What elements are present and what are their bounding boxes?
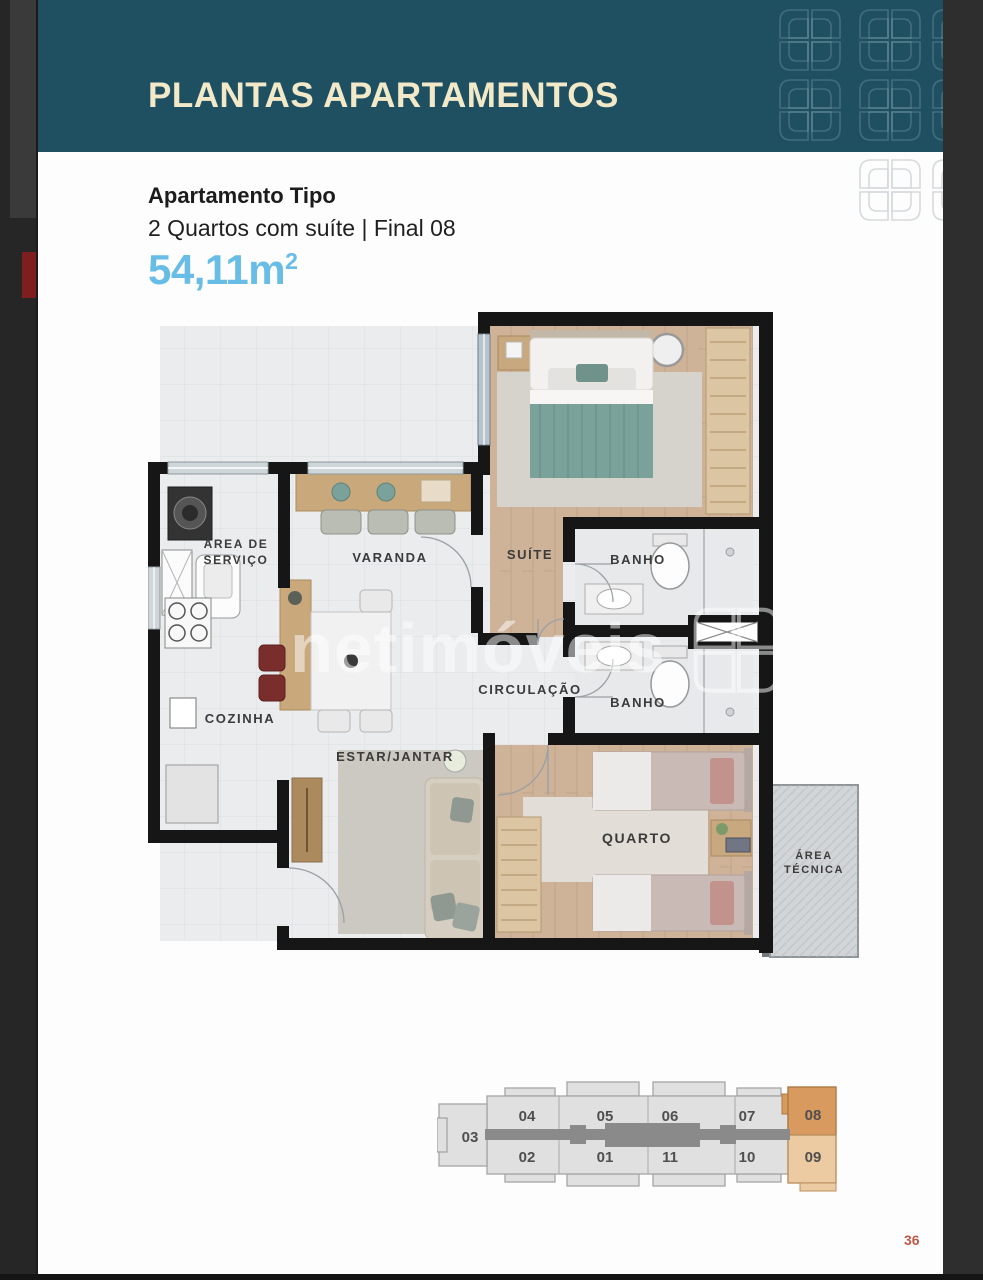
label-banho-suite: BANHO <box>610 552 666 567</box>
keyplan-highlighted-units <box>782 1087 836 1191</box>
viewer-bottom-bar <box>0 1274 983 1280</box>
page-title: PLANTAS APARTAMENTOS <box>148 76 619 116</box>
page-number: 36 <box>904 1232 920 1248</box>
unit-07-label: 07 <box>739 1108 756 1125</box>
apartment-type-heading: Apartamento Tipo <box>148 183 336 209</box>
label-area-tecnica-1: ÁREA <box>795 849 833 862</box>
label-area-servico-1: ÁREA DE <box>204 536 269 551</box>
unit-08-label: 08 <box>805 1107 822 1124</box>
label-varanda: VARANDA <box>352 550 427 565</box>
unit-09-label: 09 <box>805 1149 822 1166</box>
screenshot-canvas: PLANTAS APARTAMENTOS Apartamento Tipo 2 … <box>0 0 983 1280</box>
viewer-right-margin <box>943 0 983 1280</box>
varanda-furniture <box>296 473 471 534</box>
unit-11-label: 11 <box>662 1149 678 1166</box>
area-superscript: 2 <box>285 248 297 274</box>
label-circulacao: CIRCULAÇÃO <box>478 682 581 697</box>
unit-06-label: 06 <box>662 1108 679 1125</box>
svg-text:netimóveis: netimóveis <box>290 609 666 687</box>
label-banho-social: BANHO <box>610 695 666 710</box>
apartment-area: 54,11m2 <box>148 246 297 294</box>
label-quarto: QUARTO <box>602 830 672 846</box>
unit-01-label: 01 <box>597 1149 614 1166</box>
unit-05-label: 05 <box>597 1108 614 1125</box>
unit-02-label: 02 <box>519 1149 536 1166</box>
viewer-left-sidebar <box>0 0 38 1280</box>
label-estar: ESTAR/JANTAR <box>336 749 454 764</box>
label-area-servico-2: SERVIÇO <box>204 553 269 567</box>
keyplan-diagram: 03 04 05 06 07 08 02 01 11 10 09 <box>437 1078 849 1196</box>
area-value: 54,11m <box>148 246 285 293</box>
apartment-subtitle: 2 Quartos com suíte | Final 08 <box>148 215 456 242</box>
label-area-tecnica-2: TÉCNICA <box>784 863 844 876</box>
sidebar-thumbnail[interactable] <box>10 0 38 218</box>
brochure-page: PLANTAS APARTAMENTOS Apartamento Tipo 2 … <box>38 0 943 1277</box>
floorplan-image: netimóveis ÁREA DE SERVIÇO VARANDA SUÍTE… <box>148 312 900 964</box>
unit-04-label: 04 <box>519 1108 536 1125</box>
label-suite: SUÍTE <box>507 547 553 562</box>
label-cozinha: COZINHA <box>205 711 275 726</box>
unit-10-label: 10 <box>739 1149 756 1166</box>
suite-furniture <box>497 328 750 514</box>
unit-03-label: 03 <box>462 1129 479 1146</box>
